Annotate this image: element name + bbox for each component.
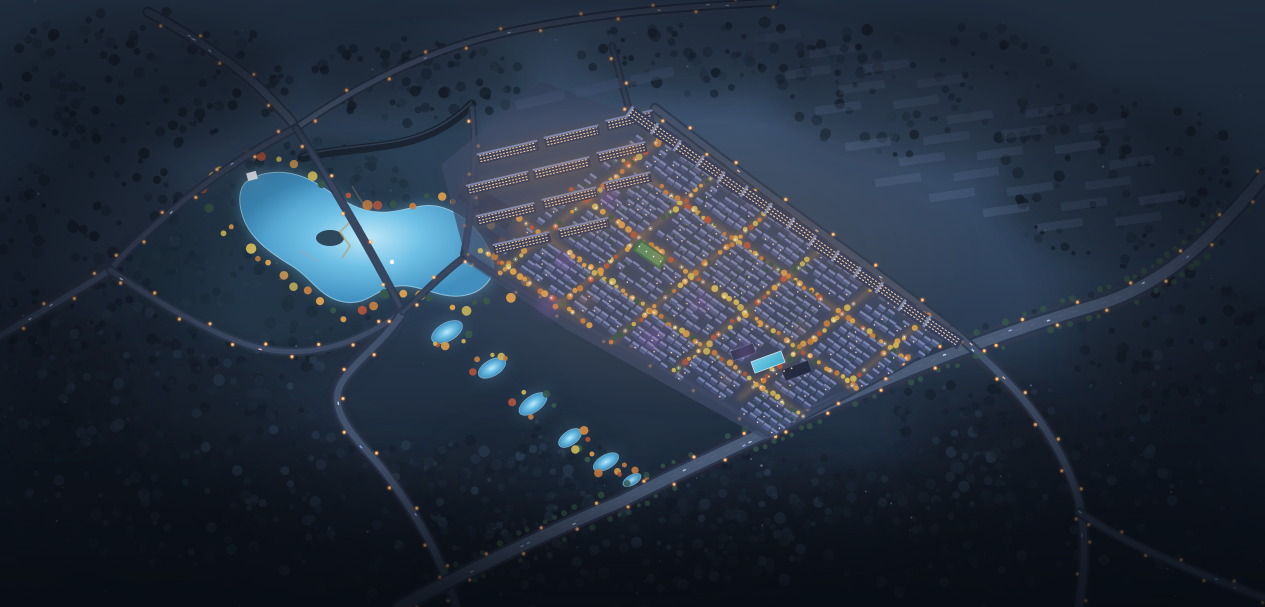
scene-svg	[0, 0, 1265, 607]
aerial-night-rendering	[0, 0, 1265, 607]
vignette-layer	[0, 0, 1265, 607]
